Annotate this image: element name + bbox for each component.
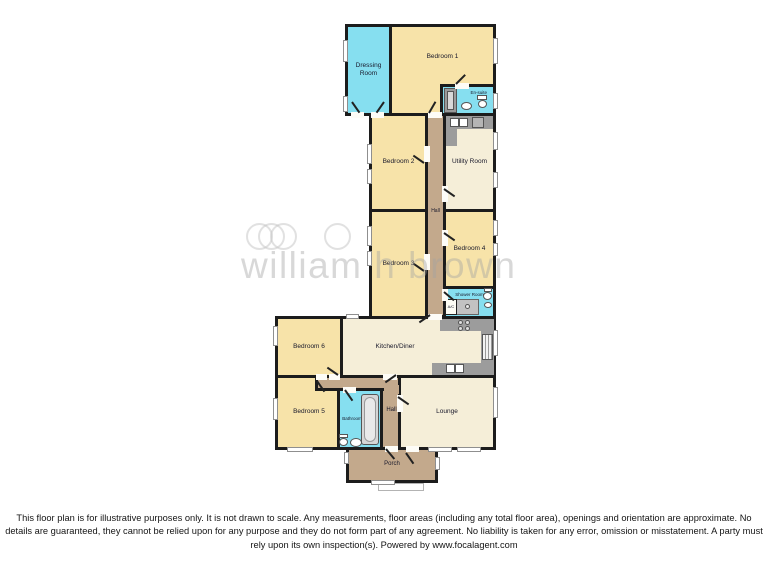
window	[428, 447, 452, 452]
window	[435, 457, 440, 470]
window	[371, 480, 395, 485]
window	[367, 169, 372, 184]
basin-icon	[350, 438, 362, 447]
window	[343, 96, 348, 112]
door-opening	[329, 374, 340, 380]
window	[457, 447, 481, 452]
toilet-icon	[478, 100, 487, 108]
window	[273, 398, 278, 420]
room-porch: Porch	[346, 447, 438, 483]
sink-icon	[455, 364, 464, 373]
fridge-icon	[482, 334, 493, 360]
room-label: Bedroom 3	[383, 260, 415, 268]
room-label: Bedroom 6	[293, 343, 325, 351]
door-opening	[424, 146, 430, 162]
sink-icon	[459, 118, 468, 127]
room-label: Bedroom 5	[293, 408, 325, 416]
window	[493, 132, 498, 150]
room-label: Shower Room	[455, 292, 484, 298]
toilet-icon	[339, 438, 348, 446]
footer: This floor plan is for illustrative purp…	[0, 512, 768, 552]
room-label: Hall	[431, 208, 440, 215]
room-label: Bedroom 2	[383, 158, 415, 166]
disclaimer-text: This floor plan is for illustrative purp…	[0, 512, 768, 552]
window	[493, 38, 498, 64]
room-label: Bathroom	[342, 416, 362, 422]
window	[367, 226, 372, 246]
toilet-icon	[483, 292, 492, 300]
room-label: Utility Room	[452, 158, 487, 166]
room-label: Lounge	[436, 408, 458, 416]
window	[344, 452, 349, 464]
hall-junction-patch	[384, 385, 399, 394]
window	[343, 40, 348, 62]
window	[273, 326, 278, 346]
window	[493, 220, 498, 236]
door-opening	[406, 446, 419, 452]
window	[493, 93, 498, 109]
sink-icon	[450, 118, 459, 127]
window	[367, 144, 372, 164]
window	[346, 314, 359, 319]
room-bedroom-6: Bedroom 6	[275, 316, 343, 378]
room-label: Dressing Room	[348, 62, 389, 79]
sink-icon	[446, 364, 455, 373]
bath-inner-icon	[364, 397, 376, 442]
hob-ring-icon	[465, 326, 470, 331]
door-opening	[316, 374, 327, 380]
airing-cupboard: A/C	[445, 299, 457, 315]
basin-icon	[461, 102, 472, 110]
hob-ring-icon	[465, 320, 470, 325]
room-bedroom-3: Bedroom 3	[369, 209, 428, 319]
room-label: Hall	[386, 407, 396, 415]
basin-icon	[484, 302, 492, 308]
shower-door-icon	[447, 91, 454, 110]
appliance-icon	[472, 117, 484, 128]
door-opening	[424, 254, 430, 270]
room-bedroom-2: Bedroom 2	[369, 113, 428, 212]
room-label: Bedroom 1	[427, 53, 459, 61]
room-bedroom-4: Bedroom 4	[443, 209, 496, 289]
room-label: Porch	[384, 461, 400, 469]
hob-ring-icon	[458, 320, 463, 325]
window	[493, 330, 498, 356]
hob-ring-icon	[458, 326, 463, 331]
window	[367, 251, 372, 266]
window	[493, 243, 498, 256]
window	[287, 447, 313, 452]
room-label: Bedroom 4	[454, 245, 486, 253]
window	[493, 172, 498, 188]
room-label: Kitchen/Diner	[375, 343, 414, 351]
shower-drain-icon	[465, 304, 470, 309]
floor-plan: Bedroom 1 Dressing Room En-suite Bedroom…	[0, 0, 768, 576]
window	[493, 387, 498, 418]
room-lounge: Lounge	[398, 375, 496, 450]
room-label: A/C	[448, 304, 455, 309]
